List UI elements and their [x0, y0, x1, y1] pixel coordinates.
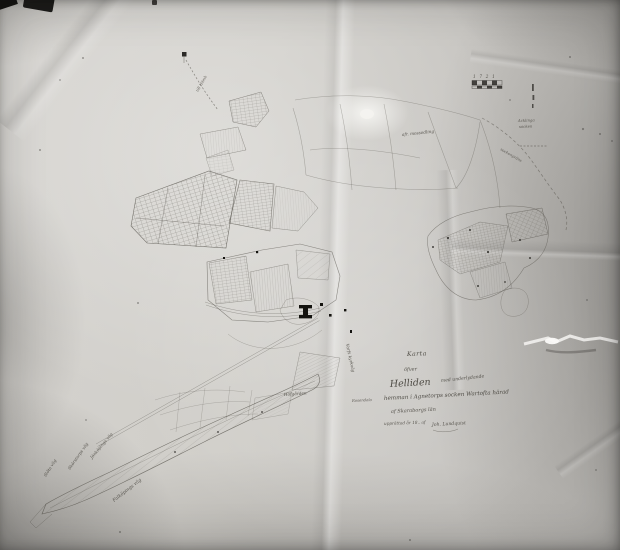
title-parish-line: hemman i Agnetorps socken Wartofta härad [384, 389, 510, 402]
signature-flourish [433, 429, 458, 432]
label-farm-hofgarden: Hofgården [283, 390, 307, 397]
west-field-blocks [131, 171, 318, 248]
right-margin-note: Acklinga socken [517, 117, 548, 146]
title-ofver: öfver [404, 367, 418, 373]
label-note-rosendala: Rosendala [351, 397, 373, 403]
right-note-line1: Acklinga [517, 117, 536, 123]
scale-stamp: 1 7 2 1 [472, 74, 502, 89]
title-signature: Joh. Lundquist [431, 420, 466, 428]
upper-road-web [293, 96, 500, 208]
label-road-slota: Slöta väg [43, 458, 58, 478]
title-karta: Karta [406, 350, 427, 358]
title-county-line: af Skaraborgs län [391, 407, 436, 415]
label-road-jonkoping: Jönköpings väg [88, 431, 113, 460]
label-road-skorstorp: Skörstorps väg [67, 441, 90, 470]
right-note-line2: socken [519, 124, 533, 129]
photographed-cadastral-map: 1 7 2 1 Acklinga socken Slöta väg Skörst… [0, 0, 620, 550]
title-estate-name: Helliden [389, 377, 431, 390]
north-parcel-cluster [200, 92, 269, 176]
top-edge-speck [152, 0, 157, 5]
label-boundary-note: sockengräns [500, 147, 524, 163]
paper-tear [524, 336, 618, 352]
label-note-mossodling: afr. mossodling [402, 129, 435, 137]
southwest-strip-arm [30, 318, 340, 528]
scale-stamp-numbers: 1 7 2 1 [473, 74, 496, 79]
central-parcel-cluster [205, 244, 340, 348]
title-estate-suffix: med underlydande [441, 373, 485, 384]
title-credit-line: upprättad år 18.. af [384, 419, 427, 426]
title-cartouche: Karta öfver Helliden med underlydande he… [384, 350, 510, 432]
paper-highlight-spot [360, 109, 374, 119]
east-parcel-cluster [427, 206, 548, 316]
edge-dash-marks [532, 84, 534, 108]
label-road-kyrkvag: Varfs kyrkväg [345, 343, 356, 373]
map-linework: 1 7 2 1 Acklinga socken Slöta väg Skörst… [0, 0, 620, 550]
label-track-homb: till Hömb [195, 74, 209, 93]
